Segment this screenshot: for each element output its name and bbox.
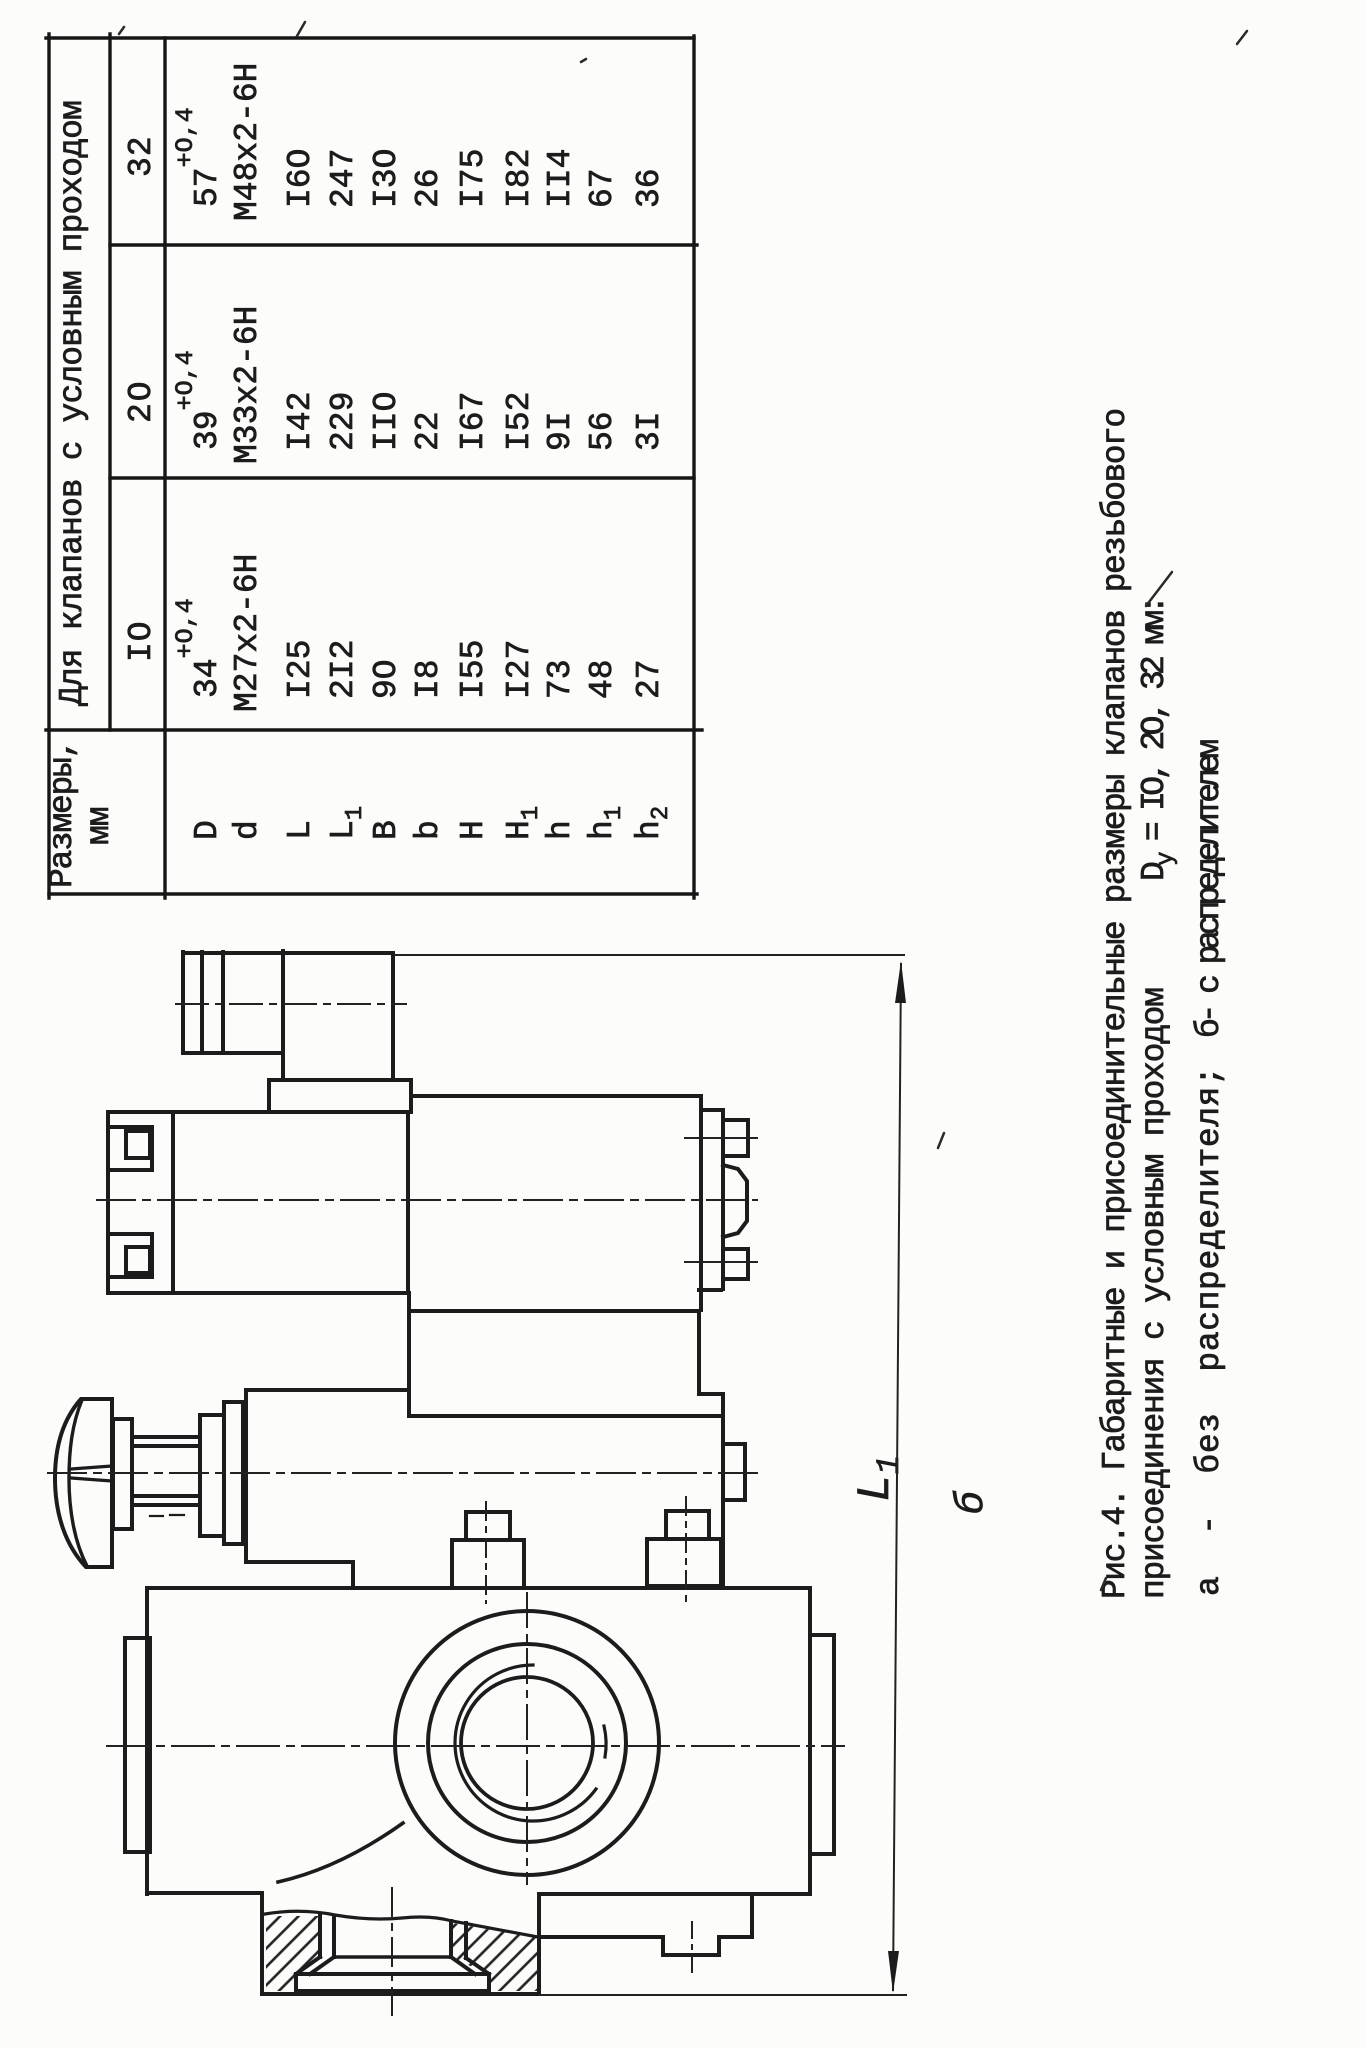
svg-text:2O: 2O xyxy=(123,379,160,423)
svg-text:I52: I52 xyxy=(501,392,538,451)
svg-text:б: б xyxy=(950,1490,995,1515)
svg-text:I42: I42 xyxy=(282,392,319,451)
svg-text:IIO: IIO xyxy=(368,392,405,451)
svg-text:229: 229 xyxy=(325,392,362,451)
svg-text:D: D xyxy=(189,820,226,840)
svg-text:b: b xyxy=(410,820,447,840)
svg-text:присоединения с условным прохо: присоединения с условным проходом xyxy=(1136,988,1173,1599)
svg-text:3I: 3I xyxy=(631,411,668,451)
svg-text:I6O: I6O xyxy=(282,149,319,208)
svg-text:а - без распределителя;: а - без распределителя; xyxy=(1191,1066,1228,1596)
svg-text:I3O: I3O xyxy=(368,149,405,208)
svg-text:I27: I27 xyxy=(501,640,538,699)
svg-text:L: L xyxy=(282,820,319,840)
svg-text:B: B xyxy=(368,820,405,840)
svg-text:h: h xyxy=(542,820,579,840)
svg-text:26: 26 xyxy=(410,168,447,208)
svg-text:I8: I8 xyxy=(410,659,447,699)
svg-text:II4: II4 xyxy=(542,149,579,208)
svg-text:247: 247 xyxy=(325,149,362,208)
svg-text:I67: I67 xyxy=(455,392,492,451)
svg-text:I55: I55 xyxy=(455,640,492,699)
svg-text:36: 36 xyxy=(631,168,668,208)
svg-text:Для клапанов с условным проход: Для клапанов с условным проходом xyxy=(54,101,91,706)
svg-text:73: 73 xyxy=(542,659,579,699)
svg-text:56: 56 xyxy=(584,411,621,451)
svg-text:I82: I82 xyxy=(501,149,538,208)
svg-text:H: H xyxy=(455,820,492,840)
svg-text:27: 27 xyxy=(631,659,668,699)
svg-text:d: d xyxy=(229,820,266,840)
svg-text:М48х2-6Н: М48х2-6Н xyxy=(229,63,266,221)
svg-text:9I: 9I xyxy=(542,411,579,451)
svg-text:2I2: 2I2 xyxy=(325,640,362,699)
svg-text:22: 22 xyxy=(410,411,447,451)
svg-text:IO: IO xyxy=(123,620,160,662)
svg-text:I25: I25 xyxy=(282,640,319,699)
svg-text:мм: мм xyxy=(81,807,118,845)
svg-text:32: 32 xyxy=(123,135,160,177)
svg-text:Размеры,: Размеры, xyxy=(44,740,81,888)
svg-text:I75: I75 xyxy=(455,149,492,208)
svg-text:б- с распределителем: б- с распределителем xyxy=(1191,740,1228,1038)
svg-text:М33х2-6Н: М33х2-6Н xyxy=(229,306,266,464)
svg-text:9O: 9O xyxy=(368,659,405,699)
svg-text:М27х2-6Н: М27х2-6Н xyxy=(229,554,266,712)
svg-text:67: 67 xyxy=(584,168,621,208)
svg-text:Рис.4. Габаритные и присоедини: Рис.4. Габаритные и присоединительные ра… xyxy=(1097,409,1134,1599)
svg-text:48: 48 xyxy=(584,659,621,699)
